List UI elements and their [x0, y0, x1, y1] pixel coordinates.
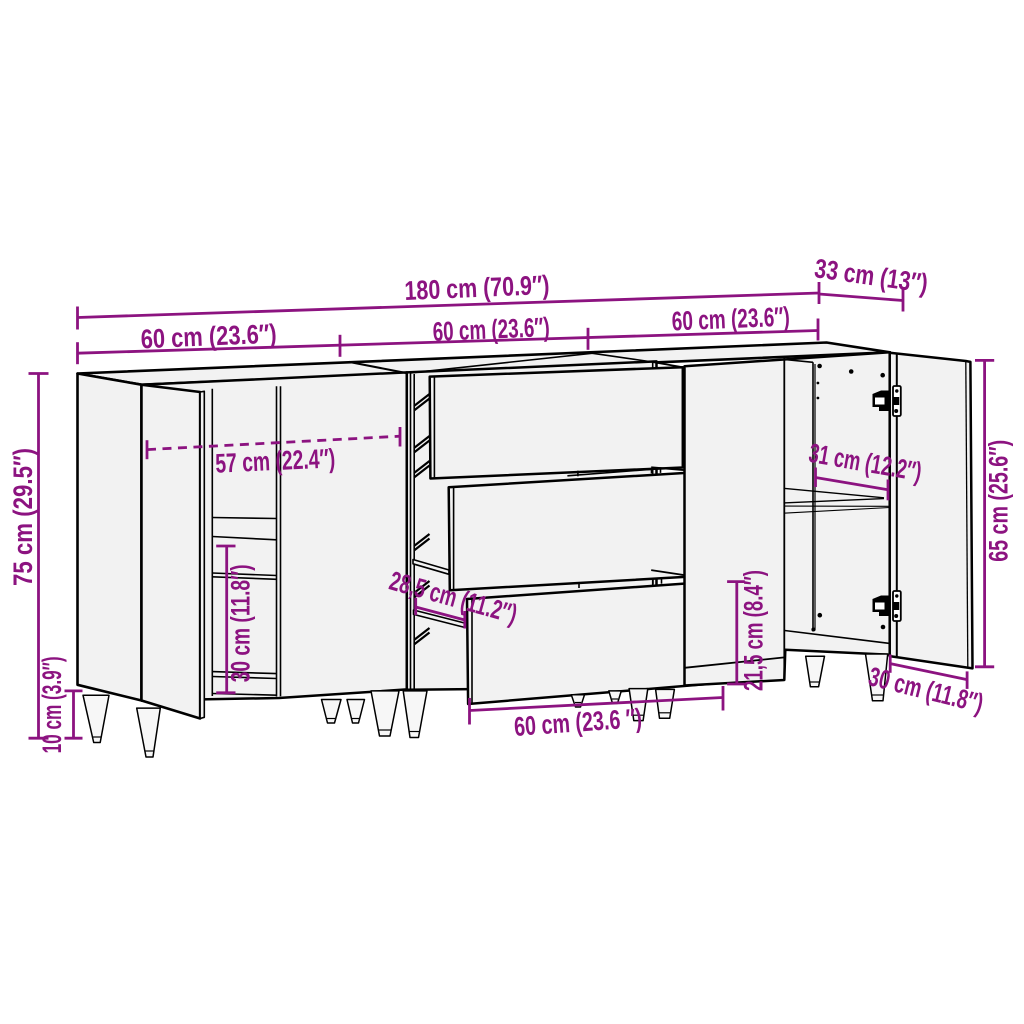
svg-text:60 cm (23.6″): 60 cm (23.6″): [140, 319, 277, 355]
svg-text:30 cm (11.8″): 30 cm (11.8″): [226, 564, 256, 682]
svg-text:180 cm (70.9″): 180 cm (70.9″): [404, 270, 550, 306]
svg-text:21,5 cm (8.4″): 21,5 cm (8.4″): [739, 570, 769, 691]
svg-text:65 cm (25.6″): 65 cm (25.6″): [983, 440, 1013, 562]
svg-text:75 cm (29.5″): 75 cm (29.5″): [8, 448, 38, 586]
svg-text:60 cm (23.6″): 60 cm (23.6″): [432, 312, 550, 347]
svg-text:60 cm (23.6″): 60 cm (23.6″): [671, 302, 790, 337]
svg-text:57 cm (22.4″): 57 cm (22.4″): [215, 443, 336, 478]
